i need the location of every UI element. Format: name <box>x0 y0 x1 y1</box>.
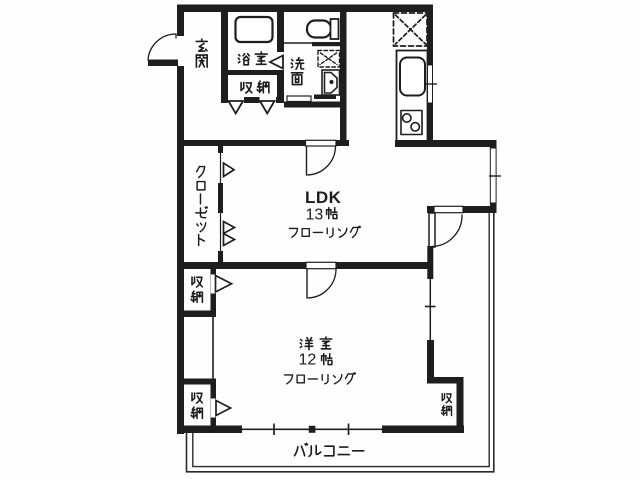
svg-text:12: 12 <box>299 352 317 369</box>
svg-text:13: 13 <box>306 207 324 224</box>
svg-text:LDK: LDK <box>305 188 342 207</box>
